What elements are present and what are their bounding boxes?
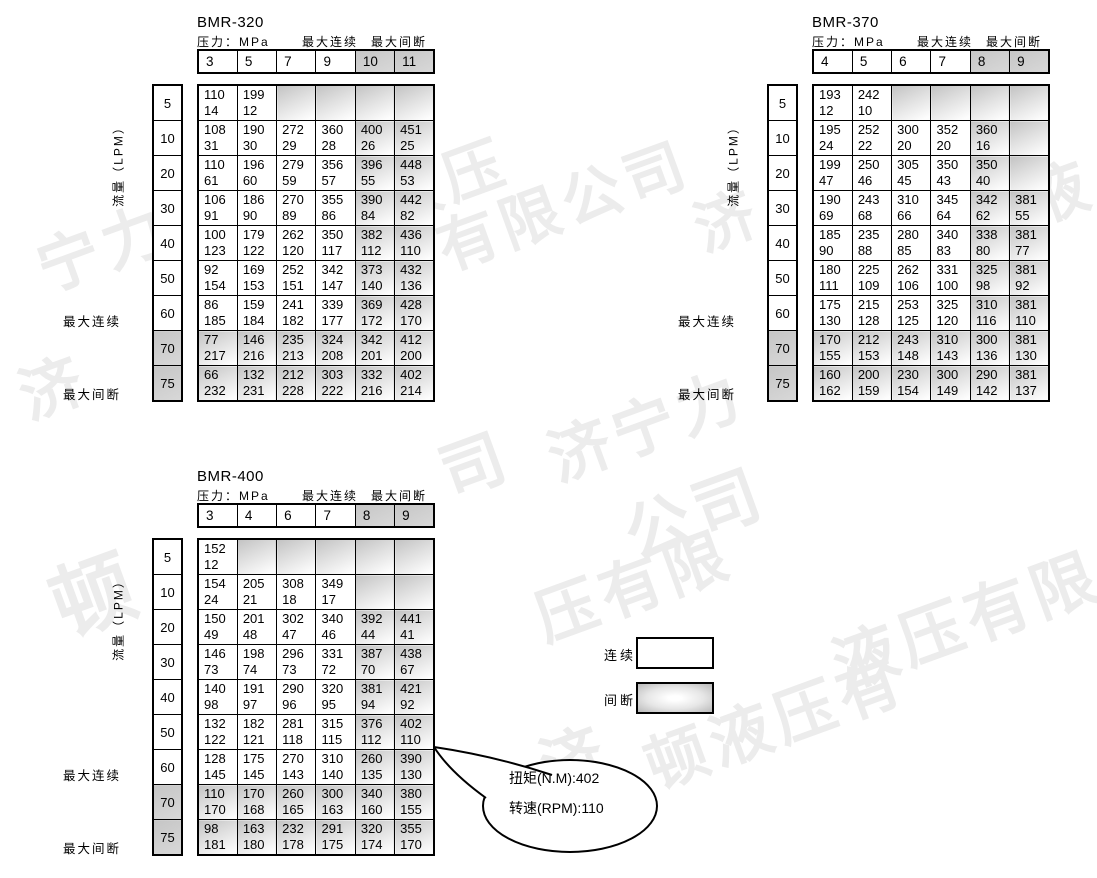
torque-value: 230 [892, 367, 930, 383]
torque-value: 310 [971, 297, 1009, 313]
torque-value: 260 [356, 751, 394, 767]
torque-value: 324 [316, 332, 354, 348]
speed-value: 74 [238, 662, 276, 678]
data-cell: 39244 [355, 610, 394, 645]
data-cell: 27959 [277, 156, 316, 191]
torque-value: 262 [277, 227, 315, 243]
watermark-text: 司 [432, 424, 520, 508]
data-cell: 30247 [277, 610, 316, 645]
data-cell: 14098 [198, 680, 237, 715]
data-cell: 262106 [892, 261, 931, 296]
speed-value: 90 [814, 243, 852, 259]
speed-value: 200 [395, 348, 433, 364]
data-cell: 38194 [355, 680, 394, 715]
torque-value: 325 [931, 297, 969, 313]
torque-value: 332 [356, 367, 394, 383]
flow-label-cell: 70 [153, 785, 182, 820]
callout-bubble [400, 730, 690, 860]
max-continuous-marker: 最大连续 [678, 311, 748, 330]
speed-value: 112 [356, 732, 394, 748]
torque-value: 340 [316, 611, 354, 627]
table-row: 146731987429673331723877043867 [198, 645, 434, 680]
torque-value: 320 [356, 821, 394, 837]
torque-value: 432 [395, 262, 433, 278]
flow-axis-label: 流量（LPM） [110, 545, 125, 691]
speed-value: 80 [971, 243, 1009, 259]
torque-value: 310 [931, 332, 969, 348]
torque-value: 438 [395, 646, 433, 662]
flow-label-cell: 50 [153, 261, 182, 296]
data-cell: 252151 [277, 261, 316, 296]
flow-label-cell: 50 [768, 261, 797, 296]
max-continuous-heading: 最大连续 [302, 33, 358, 50]
torque-value: 212 [853, 332, 891, 348]
table-row: 66232132231212228303222332216402214 [198, 366, 434, 402]
max-intermittent-heading: 最大间断 [371, 33, 427, 50]
speed-value: 170 [199, 802, 237, 818]
speed-value: 136 [395, 278, 433, 294]
data-cell: 98181 [198, 820, 237, 856]
data-cell: 15049 [198, 610, 237, 645]
data-cell: 332216 [355, 366, 394, 402]
speed-value: 55 [356, 173, 394, 189]
data-cell: 350117 [316, 226, 355, 261]
data-cell: 241182 [277, 296, 316, 331]
watermark-text: 压有限 [527, 523, 740, 651]
torque-value: 182 [238, 716, 276, 732]
data-cell: 179122 [237, 226, 276, 261]
table-subtitle: 压力：MPa最大连续最大间断 [197, 33, 435, 48]
speed-value: 16 [971, 138, 1009, 154]
torque-value: 360 [316, 122, 354, 138]
speed-value: 26 [356, 138, 394, 154]
pressure-header-row: 456789 [812, 49, 1050, 74]
speed-value: 177 [316, 313, 354, 329]
flow-label-cell: 5 [153, 539, 182, 575]
data-cell: 35043 [931, 156, 970, 191]
pressure-header-cell: 6 [277, 504, 316, 527]
speed-value: 28 [316, 138, 354, 154]
table-row: 15424205213081834917 [198, 575, 434, 610]
data-cell: 20148 [237, 610, 276, 645]
data-cell: 19912 [237, 85, 276, 121]
table-row: 132122182121281118315115376112402110 [198, 715, 434, 750]
data-cell: 27229 [277, 121, 316, 156]
torque-value: 373 [356, 262, 394, 278]
data-cell [237, 539, 276, 575]
torque-value: 402 [395, 367, 433, 383]
table-subtitle: 压力：MPa最大连续最大间断 [812, 33, 1050, 48]
speed-value: 159 [853, 383, 891, 399]
speed-value: 100 [931, 278, 969, 294]
speed-value: 40 [971, 173, 1009, 189]
pressure-header-cell: 3 [198, 504, 237, 527]
data-cell: 175145 [237, 750, 276, 785]
data-cell: 32598 [970, 261, 1009, 296]
max-intermittent-marker: 最大间断 [63, 838, 133, 857]
torque-value: 436 [395, 227, 433, 243]
data-cell: 19660 [237, 156, 276, 191]
speed-value: 181 [199, 837, 237, 853]
speed-value: 30 [238, 138, 276, 154]
data-cell: 44853 [395, 156, 434, 191]
torque-value: 270 [277, 751, 315, 767]
data-cell: 342201 [355, 331, 394, 366]
torque-value: 108 [199, 122, 237, 138]
torque-value: 159 [238, 297, 276, 313]
data-cell: 325120 [931, 296, 970, 331]
speed-value: 12 [238, 103, 276, 119]
torque-value: 191 [238, 681, 276, 697]
speed-value: 24 [199, 592, 237, 608]
speed-value: 118 [277, 732, 315, 748]
data-cell: 31066 [892, 191, 931, 226]
pressure-unit-label: 压力：MPa [197, 487, 270, 504]
torque-value: 442 [395, 192, 433, 208]
data-cell [970, 85, 1009, 121]
torque-value: 387 [356, 646, 394, 662]
torque-value: 296 [277, 646, 315, 662]
data-cell: 182121 [237, 715, 276, 750]
torque-value: 339 [316, 297, 354, 313]
torque-value: 77 [199, 332, 237, 348]
pressure-header-cell: 7 [277, 50, 316, 73]
data-cell: 39655 [355, 156, 394, 191]
table-row: 150492014830247340463924444141 [198, 610, 434, 645]
speed-value: 46 [853, 173, 891, 189]
data-cell: 200159 [852, 366, 891, 402]
data-cell: 11014 [198, 85, 237, 121]
torque-value: 110 [199, 157, 237, 173]
flow-label-cell: 20 [153, 610, 182, 645]
torque-value: 381 [1010, 297, 1048, 313]
data-cell [395, 85, 434, 121]
data-cell: 19874 [237, 645, 276, 680]
speed-value: 92 [395, 697, 433, 713]
torque-value: 241 [277, 297, 315, 313]
pressure-header-row: 346789 [197, 503, 435, 528]
data-cell: 260165 [277, 785, 316, 820]
data-cell: 215128 [852, 296, 891, 331]
data-cell: 32095 [316, 680, 355, 715]
data-cell: 34564 [931, 191, 970, 226]
speed-value: 143 [931, 348, 969, 364]
table-row: 100123179122262120350117382112436110 [198, 226, 434, 261]
speed-value: 25 [395, 138, 433, 154]
flow-label-cell: 60 [153, 750, 182, 785]
legend-intermittent-label: 间断 [604, 690, 636, 709]
speed-value: 53 [395, 173, 433, 189]
table-subtitle: 压力：MPa最大连续最大间断 [197, 487, 435, 502]
flow-label-cell: 10 [768, 121, 797, 156]
data-cell: 30020 [892, 121, 931, 156]
torque-value: 279 [277, 157, 315, 173]
table-row: 110611966027959356573965544853 [198, 156, 434, 191]
speed-value: 29 [277, 138, 315, 154]
torque-value: 169 [238, 262, 276, 278]
flow-label-cell: 60 [768, 296, 797, 331]
data-cell: 19947 [813, 156, 852, 191]
speed-value: 47 [814, 173, 852, 189]
max-intermittent-marker: 最大间断 [678, 384, 748, 403]
flow-label-cell: 20 [768, 156, 797, 191]
torque-value: 303 [316, 367, 354, 383]
torque-value: 350 [316, 227, 354, 243]
torque-value: 421 [395, 681, 433, 697]
speed-value: 185 [199, 313, 237, 329]
torque-value: 150 [199, 611, 237, 627]
data-cell: 232178 [277, 820, 316, 856]
table-row: 110170170168260165300163340160380155 [198, 785, 434, 820]
torque-value: 310 [316, 751, 354, 767]
torque-value: 92 [199, 262, 237, 278]
data-cell: 38177 [1010, 226, 1049, 261]
torque-value: 242 [853, 87, 891, 103]
speed-value: 97 [238, 697, 276, 713]
torque-value: 315 [316, 716, 354, 732]
legend-continuous-label: 连续 [604, 645, 636, 664]
speed-value: 145 [238, 767, 276, 783]
flow-label-cell: 30 [153, 645, 182, 680]
speed-value: 135 [356, 767, 394, 783]
speed-value: 106 [892, 278, 930, 294]
flow-label-cell: 40 [153, 680, 182, 715]
torque-value: 235 [853, 227, 891, 243]
torque-value: 252 [853, 122, 891, 138]
speed-value: 57 [316, 173, 354, 189]
torque-value: 448 [395, 157, 433, 173]
max-intermittent-marker: 最大间断 [63, 384, 133, 403]
data-cell: 38155 [1010, 191, 1049, 226]
torque-value: 199 [238, 87, 276, 103]
data-cell: 291175 [316, 820, 355, 856]
data-cell: 19524 [813, 121, 852, 156]
data-cell: 30818 [277, 575, 316, 610]
data-cell: 36028 [316, 121, 355, 156]
torque-value: 98 [199, 821, 237, 837]
torque-value: 235 [277, 332, 315, 348]
torque-value: 193 [814, 87, 852, 103]
pressure-header-cell: 5 [852, 50, 891, 73]
speed-value: 109 [853, 278, 891, 294]
torque-value: 132 [238, 367, 276, 383]
speed-value: 222 [316, 383, 354, 399]
torque-value: 308 [277, 576, 315, 592]
speed-value: 208 [316, 348, 354, 364]
speed-value: 214 [395, 383, 433, 399]
data-cell: 19312 [813, 85, 852, 121]
torque-value: 170 [238, 786, 276, 802]
torque-value: 225 [853, 262, 891, 278]
pressure-header-cell: 10 [355, 50, 394, 73]
data-cell: 160162 [813, 366, 852, 402]
pressure-header-cell: 9 [395, 504, 434, 527]
data-cell: 340160 [355, 785, 394, 820]
speed-value: 122 [199, 732, 237, 748]
data-cell: 432136 [395, 261, 434, 296]
speed-value: 137 [1010, 383, 1048, 399]
data-cell: 146216 [237, 331, 276, 366]
data-cell [316, 539, 355, 575]
torque-value: 243 [892, 332, 930, 348]
data-cell: 428170 [395, 296, 434, 331]
data-cell: 373140 [355, 261, 394, 296]
torque-value: 350 [971, 157, 1009, 173]
torque-value: 290 [971, 367, 1009, 383]
data-cell: 20521 [237, 575, 276, 610]
speed-value: 98 [199, 697, 237, 713]
data-cell: 262120 [277, 226, 316, 261]
legend-intermittent-swatch [636, 682, 714, 714]
data-cell: 34917 [316, 575, 355, 610]
speed-value: 165 [277, 802, 315, 818]
data-cell: 310116 [970, 296, 1009, 331]
speed-value: 91 [199, 208, 237, 224]
data-cell: 19069 [813, 191, 852, 226]
watermark-text: 公司 [617, 460, 775, 571]
data-cell: 15212 [198, 539, 237, 575]
speed-value: 10 [853, 103, 891, 119]
torque-value: 300 [316, 786, 354, 802]
data-cell: 110170 [198, 785, 237, 820]
data-cell: 45125 [395, 121, 434, 156]
torque-value: 441 [395, 611, 433, 627]
data-cell: 253125 [892, 296, 931, 331]
data-cell [355, 575, 394, 610]
data-cell: 320174 [355, 820, 394, 856]
torque-value: 382 [356, 227, 394, 243]
torque-value: 253 [892, 297, 930, 313]
table-row: 185902358828085340833388038177 [813, 226, 1049, 261]
flow-label-cell: 70 [153, 331, 182, 366]
speed-value: 182 [277, 313, 315, 329]
flow-axis-label: 流量（LPM） [110, 91, 125, 237]
speed-value: 92 [1010, 278, 1048, 294]
torque-value: 128 [199, 751, 237, 767]
speed-value: 121 [238, 732, 276, 748]
pressure-unit-label: 压力：MPa [812, 33, 885, 50]
speed-value: 90 [238, 208, 276, 224]
watermark-text: 有限公司 [430, 134, 699, 281]
flow-label-cell: 75 [153, 820, 182, 856]
torque-value: 260 [277, 786, 315, 802]
speed-value: 17 [316, 592, 354, 608]
speed-value: 162 [814, 383, 852, 399]
torque-value: 369 [356, 297, 394, 313]
table-row: 86185159184241182339177369172428170 [198, 296, 434, 331]
data-cell: 381137 [1010, 366, 1049, 402]
torque-value: 349 [316, 576, 354, 592]
speed-value: 213 [277, 348, 315, 364]
torque-value: 451 [395, 122, 433, 138]
data-cell: 342147 [316, 261, 355, 296]
torque-value: 300 [892, 122, 930, 138]
data-cell: 310140 [316, 750, 355, 785]
torque-value: 179 [238, 227, 276, 243]
torque-value: 215 [853, 297, 891, 313]
data-cell: 212153 [852, 331, 891, 366]
torque-value: 360 [971, 122, 1009, 138]
torque-value: 272 [277, 122, 315, 138]
data-cell: 25222 [852, 121, 891, 156]
torque-value: 345 [931, 192, 969, 208]
speed-value: 136 [971, 348, 1009, 364]
torque-value: 280 [892, 227, 930, 243]
speed-value: 160 [356, 802, 394, 818]
pressure-header-cell: 4 [237, 504, 276, 527]
pressure-header-cell: 8 [970, 50, 1009, 73]
speed-value: 117 [316, 243, 354, 259]
speed-value: 43 [931, 173, 969, 189]
data-body: 1101419912108311903027229360284002645125… [197, 84, 435, 402]
table-row: 98181163180232178291175320174355170 [198, 820, 434, 856]
pressure-header-cell: 11 [395, 50, 434, 73]
torque-value: 154 [199, 576, 237, 592]
torque-value: 200 [853, 367, 891, 383]
speed-value: 47 [277, 627, 315, 643]
data-cell: 38770 [355, 645, 394, 680]
table-row: 170155212153243148310143300136381130 [813, 331, 1049, 366]
data-cell: 128145 [198, 750, 237, 785]
data-cell: 24210 [852, 85, 891, 121]
data-cell: 18590 [813, 226, 852, 261]
max-continuous-marker: 最大连续 [63, 311, 133, 330]
flow-label-column: 51020304050607075 [152, 84, 183, 402]
max-continuous-heading: 最大连续 [302, 487, 358, 504]
speed-value: 59 [277, 173, 315, 189]
speed-value: 84 [356, 208, 394, 224]
torque-value: 163 [238, 821, 276, 837]
data-cell: 27089 [277, 191, 316, 226]
data-cell: 436110 [395, 226, 434, 261]
speed-value: 143 [277, 767, 315, 783]
speed-value: 20 [931, 138, 969, 154]
speed-value: 45 [892, 173, 930, 189]
data-cell: 44282 [395, 191, 434, 226]
speed-value: 18 [277, 592, 315, 608]
data-cell: 14673 [198, 645, 237, 680]
speed-value: 98 [971, 278, 1009, 294]
speed-value: 60 [238, 173, 276, 189]
data-cell: 170168 [237, 785, 276, 820]
torque-value: 342 [356, 332, 394, 348]
torque-value: 212 [277, 367, 315, 383]
torque-value: 376 [356, 716, 394, 732]
data-cell [355, 85, 394, 121]
flow-label-cell: 70 [768, 331, 797, 366]
data-cell: 29673 [277, 645, 316, 680]
speed-value: 85 [892, 243, 930, 259]
data-cell: 369172 [355, 296, 394, 331]
torque-value: 195 [814, 122, 852, 138]
flow-label-cell: 30 [153, 191, 182, 226]
data-cell: 24368 [852, 191, 891, 226]
data-cell: 180111 [813, 261, 852, 296]
speed-value: 201 [356, 348, 394, 364]
data-cell: 44141 [395, 610, 434, 645]
flow-label-cell: 5 [153, 85, 182, 121]
speed-value: 116 [971, 313, 1009, 329]
data-cell: 310143 [931, 331, 970, 366]
flow-label-cell: 40 [768, 226, 797, 261]
table-row: 1801112251092621063311003259838192 [813, 261, 1049, 296]
torque-value: 110 [199, 87, 237, 103]
flow-label-cell: 10 [153, 575, 182, 610]
torque-value: 350 [931, 157, 969, 173]
data-cell: 381110 [1010, 296, 1049, 331]
data-cell: 10691 [198, 191, 237, 226]
data-cell: 34046 [316, 610, 355, 645]
